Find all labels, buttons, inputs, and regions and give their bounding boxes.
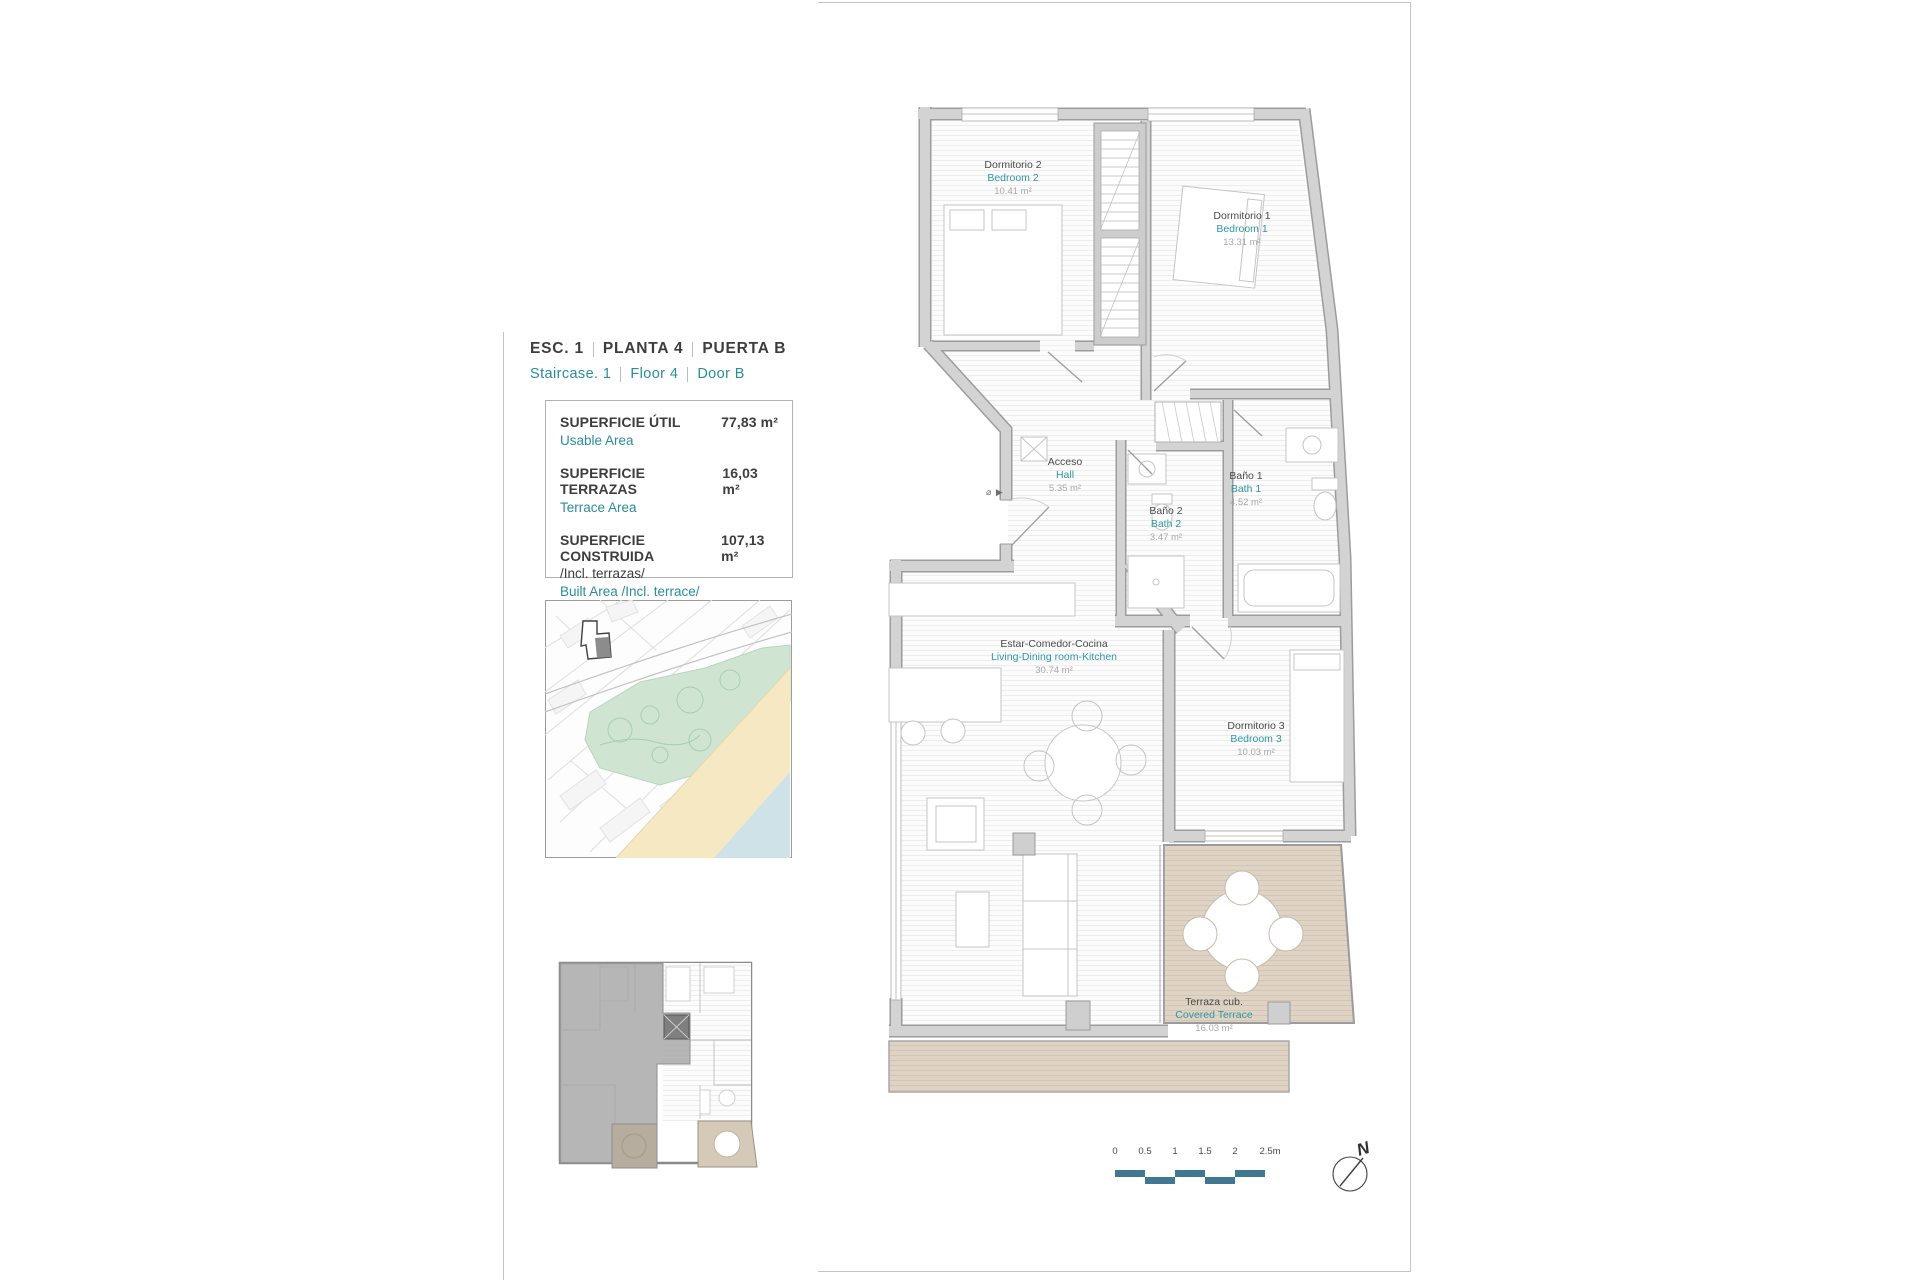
room-label-bedroom1: Dormitorio 1 Bedroom 1 13.31 m² — [1213, 210, 1270, 249]
scale-tick-label: 0.5 — [1138, 1146, 1151, 1157]
scale-tick-label: 1.5 — [1198, 1146, 1211, 1157]
title-spanish: ESC. 1PLANTA 4PUERTA B — [530, 340, 786, 358]
title-english: Staircase. 1Floor 4Door B — [530, 366, 745, 382]
key-plan — [556, 958, 802, 1182]
title-separator — [692, 342, 693, 357]
room-label-terrace: Terraza cub. Covered Terrace 16.03 m² — [1175, 996, 1252, 1035]
scale-bar-segment — [1235, 1170, 1265, 1177]
room-label-hall: Acceso Hall 5.35 m² — [1048, 456, 1082, 495]
sheet-border-top — [818, 2, 1410, 3]
usable-area-label-en: Usable Area — [560, 433, 778, 448]
bed-bedroom2 — [944, 205, 1062, 335]
north-label: N — [1354, 1138, 1372, 1160]
terrace-area-row: SUPERFICIE TERRAZAS 16,03 m² Terrace Are… — [560, 465, 778, 515]
sheet-border-bottom — [818, 1271, 1410, 1272]
wardrobe — [1155, 402, 1221, 442]
plan-open-terrace-strip — [889, 1041, 1289, 1092]
usable-area-value: 77,83 m² — [721, 414, 778, 430]
room-label-bath2: Baño 2 Bath 2 3.47 m² — [1149, 505, 1182, 544]
built-area-label-en: Built Area /Incl. terrace/ — [560, 584, 778, 599]
scale-tick-label: 2.5m — [1259, 1146, 1280, 1157]
utility-shaft — [1021, 437, 1047, 461]
title-separator — [593, 342, 594, 357]
stair-shaft — [1094, 123, 1146, 345]
title-es-door: PUERTA B — [702, 340, 786, 358]
title-es-floor: PLANTA 4 — [603, 340, 683, 358]
built-area-label-es2: /Incl. terrazas/ — [560, 566, 778, 581]
terrace-area-label-en: Terrace Area — [560, 500, 778, 515]
built-area-value: 107,13 m² — [721, 532, 778, 564]
scale-bar-segment — [1115, 1170, 1145, 1177]
built-area-label-es: SUPERFICIE CONSTRUIDA — [560, 532, 721, 564]
terrace-area-label-es: SUPERFICIE TERRAZAS — [560, 465, 722, 497]
title-en-staircase: Staircase. 1 — [530, 366, 611, 382]
title-en-floor: Floor 4 — [630, 366, 678, 382]
built-area-row: SUPERFICIE CONSTRUIDA 107,13 m² /Incl. t… — [560, 532, 778, 599]
scale-bar: 0 0.5 1 1.5 2 2.5m — [1100, 1146, 1310, 1192]
title-separator — [687, 367, 688, 382]
room-label-bath1: Baño 1 Bath 1 4.52 m² — [1229, 470, 1262, 509]
room-label-living: Estar-Comedor-Cocina Living-Dining room-… — [991, 638, 1117, 677]
scale-tick-label: 1 — [1172, 1146, 1177, 1157]
usable-area-row: SUPERFICIE ÚTIL 77,83 m² Usable Area — [560, 414, 778, 448]
location-map — [545, 600, 792, 858]
room-label-bedroom3: Dormitorio 3 Bedroom 3 10.03 m² — [1227, 720, 1284, 759]
north-arrow-icon: N — [1320, 1135, 1400, 1205]
coffee-table — [956, 892, 989, 947]
scale-bar-segment — [1145, 1177, 1175, 1184]
usable-area-label-es: SUPERFICIE ÚTIL — [560, 414, 681, 430]
key-plan-neighbor-terrace — [612, 1124, 657, 1168]
terrace-area-value: 16,03 m² — [722, 465, 778, 497]
armchair — [927, 798, 984, 850]
floor-plan — [870, 85, 1415, 1097]
sofa — [1023, 854, 1077, 996]
bed-bedroom3 — [1290, 650, 1344, 782]
title-es-staircase: ESC. 1 — [530, 340, 584, 358]
title-en-door: Door B — [697, 366, 745, 382]
scale-tick-label: 2 — [1232, 1146, 1237, 1157]
areas-summary-box: SUPERFICIE ÚTIL 77,83 m² Usable Area SUP… — [545, 400, 793, 578]
room-label-bedroom2: Dormitorio 2 Bedroom 2 10.41 m² — [984, 159, 1041, 198]
key-plan-elevator — [664, 1015, 689, 1039]
entry-direction-marker: ⌀ ▶ — [986, 487, 1004, 498]
scale-bar-segment — [1205, 1177, 1235, 1184]
title-separator — [620, 367, 621, 382]
scale-tick-label: 0 — [1112, 1146, 1117, 1157]
scale-bar-segment — [1175, 1170, 1205, 1177]
sheet-border-left — [503, 332, 504, 1280]
key-plan-unit-terrace — [698, 1121, 757, 1167]
